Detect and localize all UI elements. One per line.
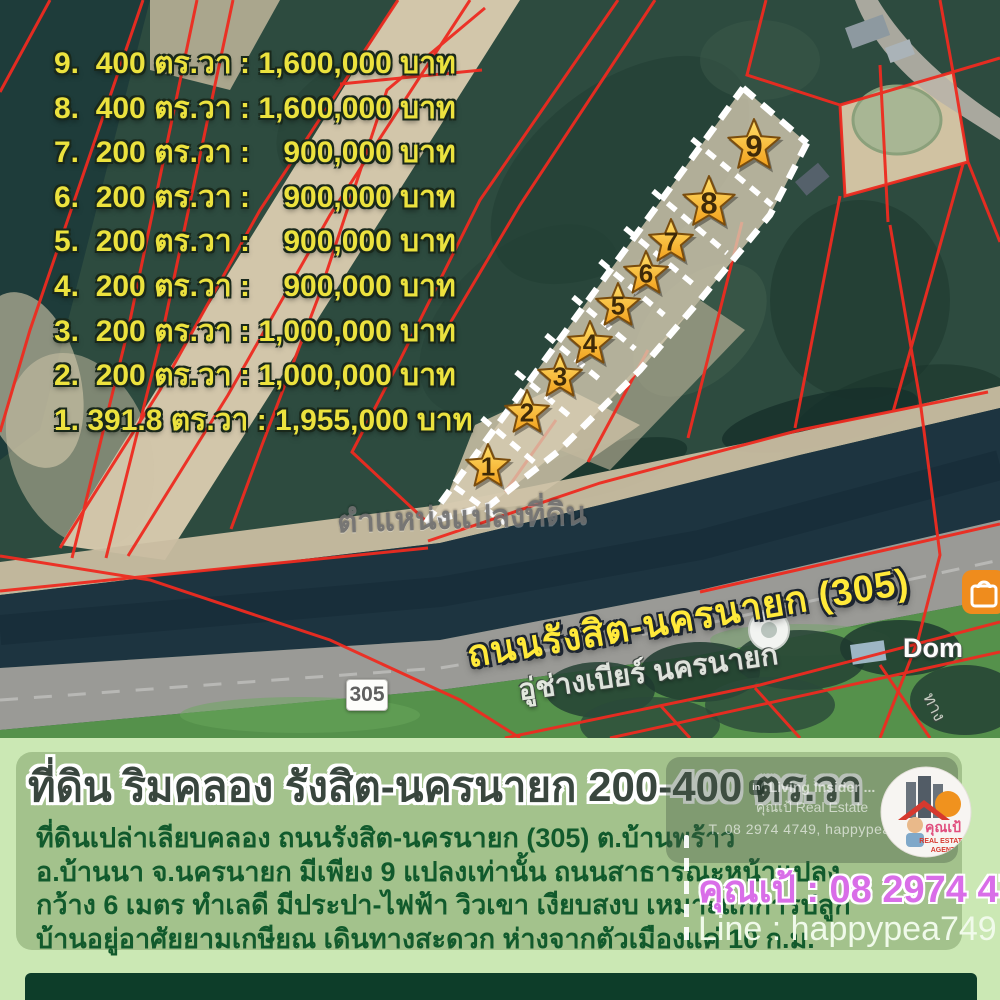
logo-sub2: AGENT <box>931 847 956 854</box>
svg-text:9: 9 <box>745 128 762 163</box>
price-list-item: 5. 200 ตร.วา : 900,000 บาท <box>54 220 473 265</box>
svg-text:6: 6 <box>639 259 653 289</box>
listing-panel: ที่ดิน ริมคลอง รังสิต-นครนายก 200-400 ตร… <box>16 752 962 950</box>
svg-text:1: 1 <box>481 452 495 482</box>
svg-text:7: 7 <box>664 227 678 257</box>
info-section: ที่ดิน ริมคลอง รังสิต-นครนายก 200-400 ตร… <box>0 738 1000 1000</box>
agent-logo: คุณเป้ REAL ESTATE AGENT <box>880 766 972 858</box>
contact-line-id: Line : happypea749 <box>698 910 997 949</box>
real-estate-ad: 123456789 9. 400 ตร.วา : 1,600,000 บาท8.… <box>0 0 1000 1000</box>
listing-description: ที่ดินเปล่าเลียบคลอง ถนนรังสิต-นครนายก (… <box>36 822 680 956</box>
description-line: กว้าง 6 เมตร ทำเลดี มีประปา-ไฟฟ้า วิวเขา… <box>36 889 680 923</box>
svg-text:3: 3 <box>553 362 567 392</box>
description-line: ที่ดินเปล่าเลียบคลอง ถนนรังสิต-นครนายก (… <box>36 822 680 856</box>
map-poi-label: Dom <box>903 633 963 664</box>
logo-sub1: REAL ESTATE <box>919 838 967 845</box>
price-list-item: 3. 200 ตร.วา : 1,000,000 บาท <box>54 310 473 355</box>
logo-name: คุณเป้ <box>925 819 961 836</box>
price-list-item: 2. 200 ตร.วา : 1,000,000 บาท <box>54 354 473 399</box>
dashed-divider <box>684 835 689 947</box>
bottom-bar <box>25 973 977 1000</box>
svg-text:4: 4 <box>583 329 598 359</box>
plot-position-watermark: ตำแหน่งแปลงที่ดิน <box>336 488 587 547</box>
description-line: อ.บ้านนา จ.นครนายก มีเพียง 9 แปลงเท่านั้… <box>36 856 680 890</box>
price-list-item: 6. 200 ตร.วา : 900,000 บาท <box>54 176 473 221</box>
price-list-item: 8. 400 ตร.วา : 1,600,000 บาท <box>54 87 473 132</box>
price-list-item: 1. 391.8 ตร.วา : 1,955,000 บาท <box>54 399 473 444</box>
plot-price-list: 9. 400 ตร.วา : 1,600,000 บาท8. 400 ตร.วา… <box>54 42 473 443</box>
watermark-line1: Living Insider ... <box>769 780 876 795</box>
svg-text:5: 5 <box>611 291 625 321</box>
svg-text:2: 2 <box>520 398 534 428</box>
price-list-item: 9. 400 ตร.วา : 1,600,000 บาท <box>54 42 473 87</box>
description-line: บ้านอยู่อาศัยยามเกษียณ เดินทางสะดวก ห่าง… <box>36 923 680 957</box>
living-insider-icon: in <box>749 780 764 795</box>
svg-text:8: 8 <box>700 185 717 220</box>
route-305-shield: 305 <box>346 679 388 711</box>
price-list-item: 7. 200 ตร.วา : 900,000 บาท <box>54 131 473 176</box>
satellite-map: 123456789 9. 400 ตร.วา : 1,600,000 บาท8.… <box>0 0 1000 738</box>
price-list-item: 4. 200 ตร.วา : 900,000 บาท <box>54 265 473 310</box>
shop-poi-icon <box>962 570 1000 614</box>
